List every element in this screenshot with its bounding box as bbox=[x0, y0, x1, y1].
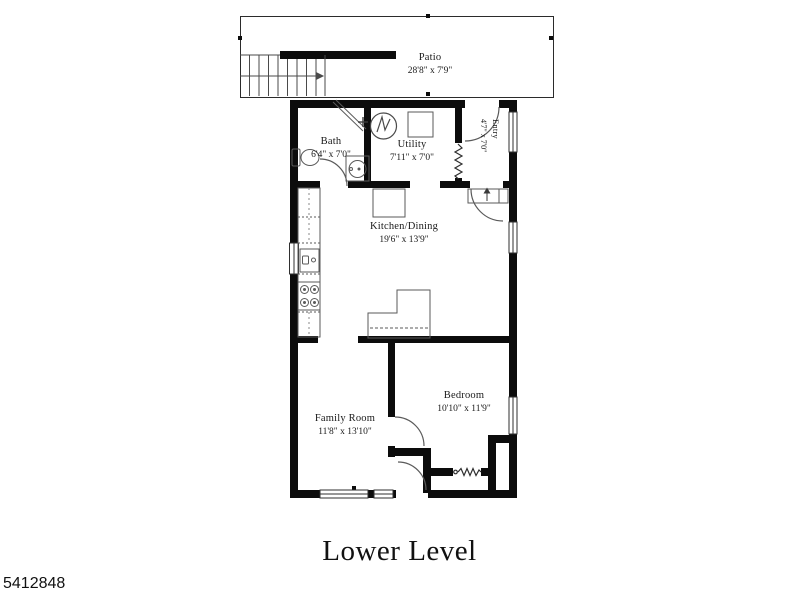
kitchen-sink-icon bbox=[300, 249, 319, 272]
room-label-utility: Utility 7'11" x 7'0" bbox=[390, 138, 434, 165]
door-swing bbox=[395, 417, 424, 446]
room-dims: 4'7" x 7'0" bbox=[477, 119, 489, 152]
room-dims: 19'6" x 13'9" bbox=[370, 234, 438, 247]
room-name: Patio bbox=[408, 51, 452, 65]
room-label-family-room: Family Room 11'8" x 13'10" bbox=[315, 412, 375, 439]
room-dims: 10'10" x 11'9" bbox=[437, 403, 491, 416]
window bbox=[509, 222, 517, 253]
door-swing bbox=[398, 462, 426, 490]
room-label-bath: Bath 6'4" x 7'0" bbox=[311, 135, 351, 162]
room-name: Bath bbox=[311, 135, 351, 149]
room-dims: 6'4" x 7'0" bbox=[311, 149, 351, 162]
valve-cross-icon bbox=[358, 117, 368, 127]
entry-steps bbox=[468, 188, 508, 204]
floor-plan: Patio 28'8" x 7'9" Bath 6'4" x 7'0" Util… bbox=[0, 0, 799, 600]
window bbox=[290, 243, 299, 274]
furnace-icon bbox=[408, 112, 433, 137]
room-name: Entry bbox=[489, 119, 502, 152]
window bbox=[509, 397, 517, 434]
stair-direction-arrow-icon bbox=[316, 73, 323, 80]
window bbox=[509, 112, 517, 152]
windows bbox=[290, 112, 518, 498]
window bbox=[374, 490, 393, 498]
room-dims: 28'8" x 7'9" bbox=[408, 65, 452, 78]
room-dims: 7'11" x 7'0" bbox=[390, 152, 434, 165]
accordion-door-icon bbox=[454, 469, 481, 476]
window bbox=[320, 490, 368, 498]
room-label-kitchen: Kitchen/Dining 19'6" x 13'9" bbox=[370, 220, 438, 247]
door-swing bbox=[320, 159, 347, 186]
room-name: Bedroom bbox=[437, 389, 491, 403]
refrigerator-icon bbox=[373, 189, 405, 217]
stairs bbox=[240, 55, 325, 96]
room-name: Kitchen/Dining bbox=[370, 220, 438, 234]
stove-icon bbox=[298, 282, 320, 310]
kitchen-island-stairs bbox=[368, 290, 430, 338]
room-name: Family Room bbox=[315, 412, 375, 426]
room-name: Utility bbox=[390, 138, 434, 152]
page-title: Lower Level bbox=[0, 535, 799, 568]
washer-icon bbox=[371, 113, 397, 139]
linework-layer bbox=[0, 0, 799, 600]
room-label-bedroom: Bedroom 10'10" x 11'9" bbox=[437, 389, 491, 416]
angled-wall bbox=[333, 100, 366, 131]
room-label-entry: Entry 4'7" x 7'0" bbox=[477, 119, 502, 152]
radiator-zigzag-icon bbox=[455, 144, 462, 179]
up-arrow-icon bbox=[484, 188, 491, 194]
room-label-patio: Patio 28'8" x 7'9" bbox=[408, 51, 452, 78]
room-dims: 11'8" x 13'10" bbox=[315, 426, 375, 439]
photo-id: 5412848 bbox=[3, 575, 65, 593]
